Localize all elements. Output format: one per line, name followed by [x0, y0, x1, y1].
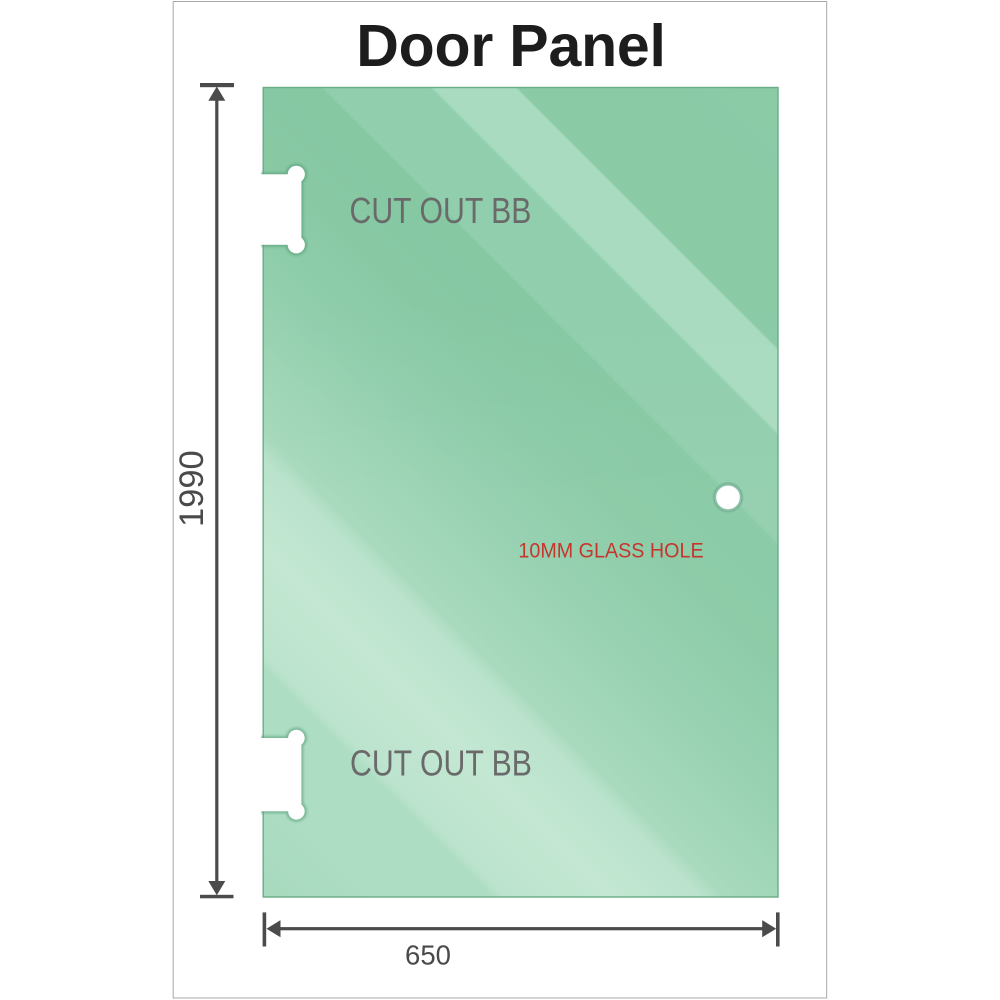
svg-text:CUT OUT BB: CUT OUT BB: [350, 191, 532, 231]
svg-text:CUT OUT BB: CUT OUT BB: [350, 744, 532, 784]
svg-text:10MM GLASS HOLE: 10MM GLASS HOLE: [518, 540, 703, 563]
svg-text:1990: 1990: [173, 450, 211, 527]
svg-text:650: 650: [405, 940, 451, 971]
svg-text:Door Panel: Door Panel: [356, 13, 665, 79]
